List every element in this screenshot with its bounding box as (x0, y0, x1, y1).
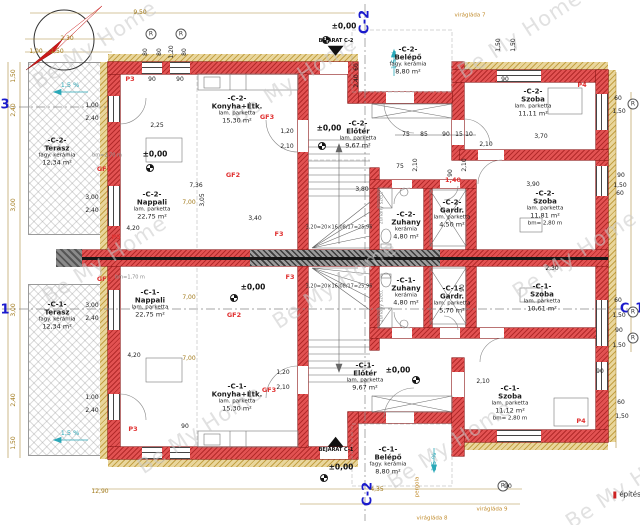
entrance-arrow-icon (328, 437, 344, 447)
dimension-text: 60 (614, 96, 622, 102)
window (497, 430, 541, 442)
room-label-line: Gardr. (434, 293, 471, 301)
room-label-line: 4,50 m² (434, 221, 471, 229)
dimension-text: 80 (157, 48, 163, 56)
dimension-text: 3,40 (248, 216, 261, 222)
room-label--c-2-zuhany: -C-2-Zuhanykerámia4,80 m² (391, 211, 420, 242)
dimension-text: 2,40 (85, 408, 98, 414)
dimension-text: 4,20 (127, 353, 140, 359)
dimension-text: 2,10 (479, 142, 492, 148)
room-label-line: Zuhany (391, 219, 420, 227)
opening-label: P3 (128, 426, 137, 433)
dimension-text: 7,00 (182, 356, 195, 362)
dimension-text: 60 (616, 191, 624, 197)
stair-formula: 3,20=20×16,08/17=25,96 (306, 226, 373, 231)
dimension-text: 90 (442, 132, 450, 138)
site-note: virágláda 7 (455, 13, 486, 19)
room-label-line: 15,30 m² (212, 405, 263, 413)
room-label-line: -C-1- (132, 289, 169, 297)
dimension-text: 2,10 (462, 158, 468, 171)
room-label-line: 4,80 m² (391, 233, 420, 241)
room-label--c-2-gardr-: -C-2-Gardr.lam. parketta4,50 m² (434, 199, 471, 230)
level-text: ±0,00 (143, 150, 168, 158)
room-label-line: 10,61 m² (524, 305, 561, 313)
opening-label: GF2 (227, 312, 241, 319)
door-opening (386, 92, 414, 103)
opening-label: GF3 (262, 387, 276, 394)
fixture-note: zuhany szett (380, 290, 385, 322)
entrance-marker: BEJÁRAT C-1 (319, 437, 354, 454)
room-label-line: -C-2- (434, 199, 471, 207)
room-label--c-2-bel-p-: -C-2-Belépőfagy. kerámia8,80 m² (389, 46, 426, 77)
window (108, 186, 120, 226)
dimension-text: 1,50 (613, 183, 626, 189)
room-label-line: Gardr. (434, 207, 471, 215)
opening-label: 1,40 (445, 177, 461, 184)
opening-label: P4 (577, 82, 586, 89)
insulation-strip (608, 70, 616, 442)
dimension-text: 60 (617, 400, 625, 406)
party-wall-core (62, 257, 608, 260)
room-label--c-1-konyha-tk-: -C-1-Konyha+Étk.lam. parketta15,30 m² (212, 383, 263, 414)
room-label--c-1-bel-p-: -C-1-Belépőfagy. kerámia8,80 m² (369, 446, 406, 477)
dimension-text: 75 (402, 132, 410, 138)
dimension-text: 1,50 (612, 313, 625, 319)
room-label-line: Nappali (132, 297, 169, 305)
sheet-note: építési (613, 492, 640, 499)
dimension-text: 9,50 (133, 10, 146, 16)
height-note: bm=1,70 m (115, 276, 145, 281)
level-text: ±0,00 (332, 22, 357, 30)
wall-segment (424, 186, 432, 250)
slope-label: 1,5 % (61, 430, 80, 437)
site-note: virágláda 9 (477, 507, 508, 513)
room-label--c-2-nappali: -C-2-Nappalilam. parketta22,75 m² (134, 191, 171, 222)
room-label-line: Terasz (38, 145, 75, 153)
dimension-text: 80 (182, 48, 188, 56)
dimension-text: 90 (617, 173, 625, 179)
dimension-text: 3,05 (200, 193, 206, 206)
opening-label: GF1 (97, 276, 111, 283)
dimension-text: 15 (455, 132, 463, 138)
window (596, 362, 608, 390)
room-label-line: Szoba (515, 96, 552, 104)
room-label--c-2-terasz: -C-2-Teraszfagy. kerámia12,34 m² (38, 137, 75, 168)
opening-label: P3 (125, 76, 134, 83)
door-opening (298, 120, 308, 152)
dimension-text: 3,00 (11, 198, 17, 211)
dimension-text: 1,50 (615, 414, 628, 420)
room-label-line: 22,75 m² (134, 213, 171, 221)
room-label-line: bm= 2,80 m (527, 220, 564, 226)
dimension-text: 90 (504, 484, 512, 490)
room-label-line: 9,67 m² (340, 142, 377, 150)
room-label-line: 11,12 m² (492, 407, 529, 415)
circled-r-marker: R (176, 29, 187, 40)
dimension-text: 3,90 (526, 182, 539, 188)
room-label-line: Szoba (524, 291, 561, 299)
dimension-text: 3,80 (355, 187, 368, 193)
room-label-line: -C-1- (347, 362, 384, 370)
dimension-text: 2,10 (413, 158, 419, 171)
room-label-line: 5,70 m² (434, 307, 471, 315)
dimension-text: 90 (181, 424, 189, 430)
dimension-text: 1,50 (50, 49, 63, 55)
room-label-line: -C-1- (391, 277, 420, 285)
room-label-line: -C-1- (38, 301, 75, 309)
dimension-text: 90 (148, 77, 156, 83)
room-label-line: 11,81 m² (527, 212, 564, 220)
dimension-text: 1,20 (169, 45, 175, 58)
dimension-text: 2,10 (280, 144, 293, 150)
room-label-line: -C-1- (524, 283, 561, 291)
dimension-text: 10 (465, 132, 473, 138)
dimension-text: 1,50 (11, 436, 17, 449)
dimension-text: 4,35 (370, 487, 383, 493)
room-label-line: 22,75 m² (132, 311, 169, 319)
window (108, 96, 120, 122)
room-label--c-1-gardr-: -C-1-Gardr.lam. parketta5,70 m² (434, 285, 471, 316)
room-label-line: -C-1- (212, 383, 263, 391)
dimension-text: 2,40 (11, 103, 17, 116)
room-label-line: -C-2- (340, 120, 377, 128)
room-label-line: Szoba (492, 393, 529, 401)
dimension-text: 75 (396, 164, 404, 170)
room-label-line: Belépő (389, 54, 426, 62)
opening-label: GF1 (97, 166, 111, 173)
dimension-text: 90 (615, 328, 623, 334)
dimension-text: 1,00 (85, 103, 98, 109)
room-label-line: Előtér (347, 370, 384, 378)
dimension-text: 2,10 (276, 385, 289, 391)
dimension-text: 2,10 (476, 379, 489, 385)
room-label-line: -C-2- (389, 46, 426, 54)
level-marker-icon (320, 474, 328, 482)
opening-label: P4 (576, 418, 585, 425)
room-label--c-1-nappali: -C-1-Nappalilam. parketta22,75 m² (132, 289, 169, 320)
slope-label: 1,5 % (61, 82, 80, 89)
room-label--c-1-el-t-r: -C-1-Előtérlam. parketta9,67 m² (347, 362, 384, 393)
room-label-line: Zuhany (391, 285, 420, 293)
door-opening (298, 366, 308, 394)
entrance-label: BEJÁRAT C-2 (319, 39, 354, 45)
site-note: virágláda 8 (417, 516, 448, 522)
window (108, 394, 120, 420)
dimension-text: 1,50 (612, 343, 625, 349)
dimension-text: 1,50 (511, 38, 517, 51)
window (596, 166, 608, 196)
dimension-text: 7,00 (182, 295, 195, 301)
slope-label: 1,5 % (431, 453, 438, 472)
dimension-text: 60 (614, 298, 622, 304)
door-opening (392, 180, 412, 188)
window (142, 62, 162, 74)
level-text: ±0,00 (386, 366, 411, 374)
door-opening (392, 328, 412, 338)
dimension-text: 90 (501, 77, 509, 83)
opening-label: F3 (275, 231, 284, 238)
room-label-line: 8,80 m² (389, 68, 426, 76)
room-label-line: 15,30 m² (212, 117, 263, 125)
circled-r-marker: R (628, 307, 639, 318)
room-label-line: -C-2- (212, 95, 263, 103)
site-note: pergola (415, 477, 421, 498)
circled-r-marker: R (628, 99, 639, 110)
height-note: bm=2,70 m (92, 154, 122, 159)
dimension-text: 85 (420, 132, 428, 138)
room-label-line: Belépő (369, 454, 406, 462)
level-text: ±0,00 (317, 124, 342, 132)
insulation-strip (452, 442, 608, 450)
room-label-line: Szoba (527, 198, 564, 206)
window (596, 94, 608, 130)
dimension-text: 2,40 (85, 116, 98, 122)
door-opening (452, 372, 464, 397)
watermark: Be My Home (562, 437, 640, 525)
room-label-line: 11,11 m² (515, 110, 552, 118)
stair-formula: 3,20=20×16,08/17=25,96 (306, 285, 373, 290)
door-opening (386, 412, 414, 423)
room-label-line: -C-1- (434, 285, 471, 293)
stairs-c2 (308, 140, 370, 248)
room-label--c-2-szoba: -C-2-Szobalam. parketta11,81 m²bm= 2,80 … (527, 190, 564, 227)
dimension-text: 3,00 (11, 303, 17, 316)
room-label--c-2-szoba: -C-2-Szobalam. parketta11,11 m² (515, 88, 552, 119)
dimension-text: 3,70 (534, 134, 547, 140)
room-label-line: 9,67 m² (347, 384, 384, 392)
level-marker-icon (318, 142, 326, 150)
dimension-text: 1,50 (496, 38, 502, 51)
room-label--c-1-szoba: -C-1-Szobalam. parketta11,12 m²bm= 2,80 … (492, 385, 529, 422)
circled-r-marker: R (146, 29, 157, 40)
dimension-text: 1,20 (276, 370, 289, 376)
dimension-text: 2,30 (60, 36, 73, 42)
window (108, 290, 120, 330)
room-label-line: -C-2- (527, 190, 564, 198)
level-marker-icon (146, 164, 154, 172)
entrance-marker: BEJÁRAT C-2 (319, 39, 354, 56)
dimension-text: 1,20 (280, 129, 293, 135)
dimension-text: 60 (354, 63, 360, 71)
opening-label: F3 (286, 274, 295, 281)
opening-label: GF2 (226, 172, 240, 179)
dimension-text: 2,40 (354, 74, 360, 87)
dimension-text: 2,40 (85, 316, 98, 322)
dimension-text: 2,30 (545, 266, 558, 272)
dimension-text: 2,40 (85, 208, 98, 214)
room-label-line: 8,80 m² (369, 468, 406, 476)
dimension-text: 4,20 (126, 226, 139, 232)
room-label-line: Nappali (134, 199, 171, 207)
level-text: ±0,00 (329, 463, 354, 471)
dimension-text: 1,00 (29, 49, 42, 55)
door-opening (478, 150, 504, 160)
dimension-text: 7,36 (189, 183, 202, 189)
room-label-line: -C-2- (391, 211, 420, 219)
dimension-text: 2,25 (150, 123, 163, 129)
room-label-line: -C-2- (515, 88, 552, 96)
room-label-line: -C-1- (369, 446, 406, 454)
dimension-text: 3,00 (85, 195, 98, 201)
fixture-note: zuhany szett (380, 192, 385, 224)
dimension-text: 12,90 (91, 489, 108, 495)
entrance-arrow-icon (328, 45, 344, 55)
room-label--c-1-szoba: -C-1-Szobalam. parketta10,61 m² (524, 283, 561, 314)
dimension-text: 90 (596, 369, 604, 375)
section-label: 3 (0, 99, 9, 112)
window (596, 300, 608, 346)
section-label: 1 (0, 304, 9, 317)
dimension-text: 3,00 (85, 303, 98, 309)
dimension-text: 90 (176, 77, 184, 83)
room-label-line: Terasz (38, 309, 75, 317)
room-label-line: 12,34 m² (38, 159, 75, 167)
level-marker-icon (230, 294, 238, 302)
floor-plan-sheet: Be My HomeBe My HomeBe My HomeBe My Home… (0, 0, 640, 525)
dimension-text: 1,50 (11, 69, 17, 82)
room-label-line: bm= 2,80 m (492, 415, 529, 421)
wall-segment (424, 266, 432, 330)
entrance-label: BEJÁRAT C-1 (319, 448, 354, 454)
door-opening (480, 328, 504, 338)
room-label-line: Konyha+Étk. (212, 391, 263, 399)
room-label-line: 4,80 m² (391, 299, 420, 307)
room-label--c-2-konyha-tk-: -C-2-Konyha+Étk.lam. parketta15,30 m² (212, 95, 263, 126)
window (170, 62, 190, 74)
room-label--c-1-terasz: -C-1-Teraszfagy. kerámia12,34 m² (38, 301, 75, 332)
room-label-line: -C-2- (38, 137, 75, 145)
section-label: C-2 (359, 10, 372, 34)
room-label-line: 12,34 m² (38, 323, 75, 331)
dimension-text: 1,00 (85, 395, 98, 401)
room-label--c-2-el-t-r: -C-2-Előtérlam. parketta9,67 m² (340, 120, 377, 151)
room-label-line: -C-1- (492, 385, 529, 393)
room-label-line: -C-2- (134, 191, 171, 199)
dimension-text: 90 (448, 169, 454, 177)
room-label-line: Konyha+Étk. (212, 103, 263, 111)
opening-label: P5 (111, 234, 120, 241)
dimension-text: 7,00 (182, 200, 195, 206)
dimension-text: 2,40 (11, 393, 17, 406)
room-label-line: Előtér (340, 128, 377, 136)
dimension-text: 80 (143, 48, 149, 56)
level-marker-icon (412, 376, 420, 384)
door-opening (440, 328, 460, 338)
dimension-text: 1,50 (612, 109, 625, 115)
room-label--c-1-zuhany: -C-1-Zuhanykerámia4,80 m² (391, 277, 420, 308)
circled-r-marker: R (628, 333, 639, 344)
level-text: ±0,00 (241, 283, 266, 291)
